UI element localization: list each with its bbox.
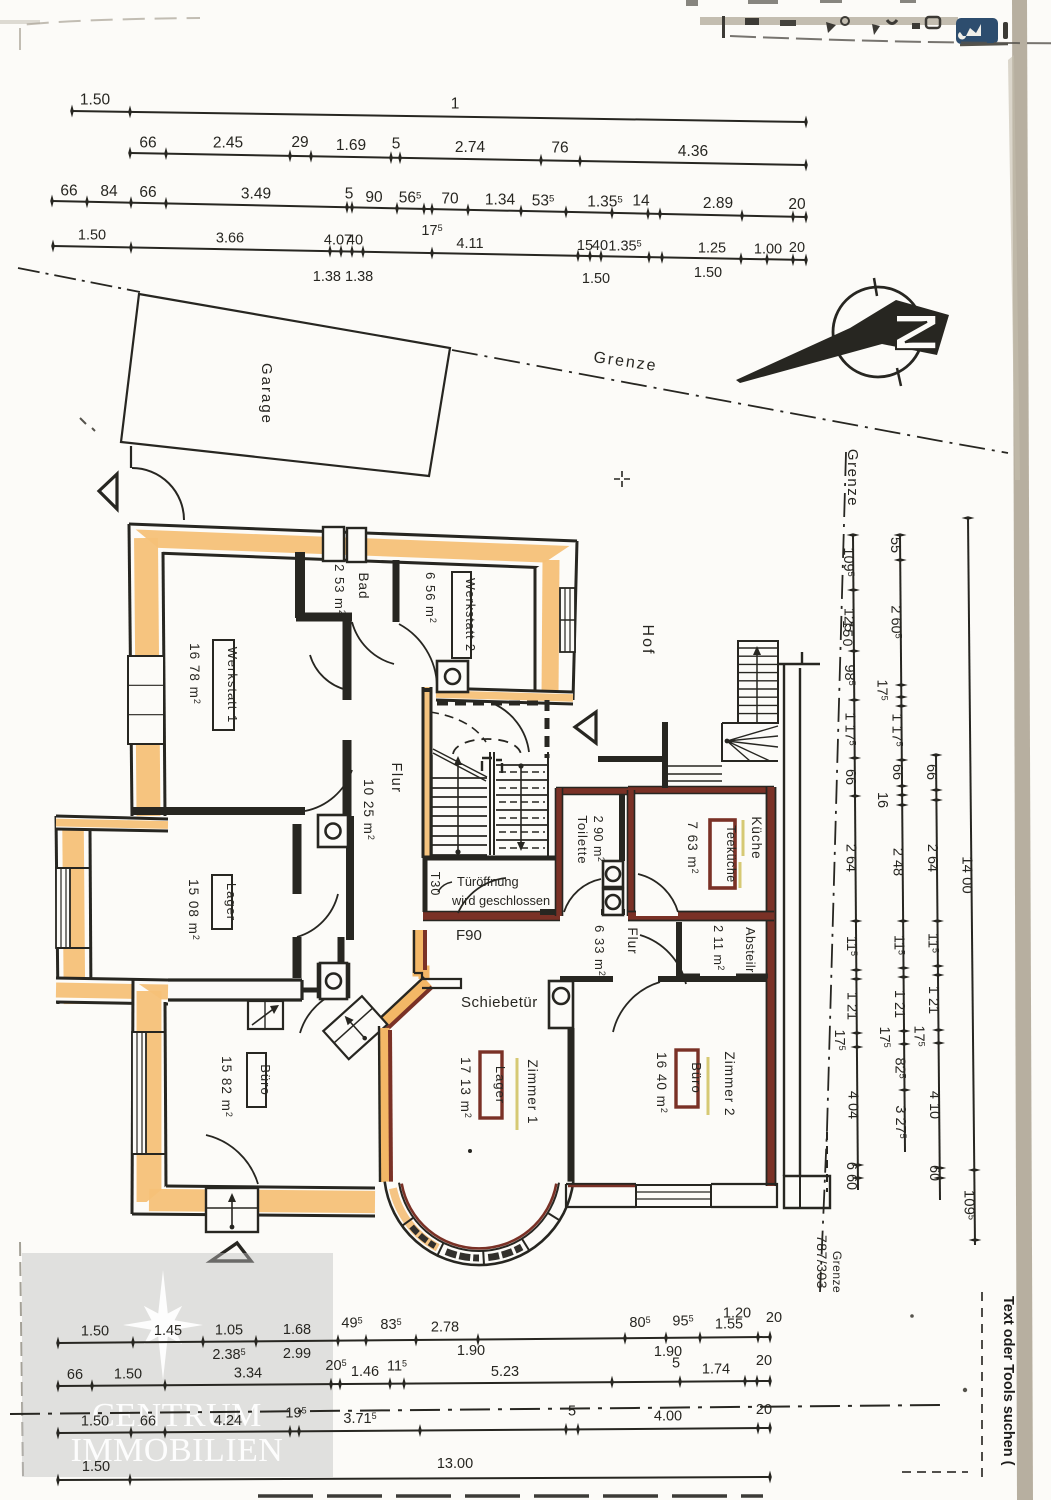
- svg-text:2 53 m2: 2 53 m2: [332, 564, 347, 616]
- svg-text:3.49: 3.49: [241, 185, 271, 202]
- svg-text:5: 5: [672, 1356, 680, 1372]
- svg-text:1.25: 1.25: [698, 240, 726, 256]
- svg-text:2.45: 2.45: [213, 135, 243, 152]
- svg-text:2 64: 2 64: [924, 844, 940, 872]
- svg-text:1.50: 1.50: [80, 91, 111, 108]
- svg-text:N: N: [883, 311, 948, 353]
- svg-text:7 63 m2: 7 63 m2: [685, 821, 700, 874]
- svg-text:Türöffnung: Türöffnung: [457, 874, 519, 889]
- svg-text:2.89: 2.89: [703, 195, 733, 212]
- svg-text:10 25 m2: 10 25 m2: [361, 779, 376, 841]
- svg-text:2.74: 2.74: [455, 139, 486, 156]
- svg-text:1.50: 1.50: [582, 271, 610, 287]
- svg-text:Werkstatt 1: Werkstatt 1: [225, 647, 240, 724]
- svg-text:40: 40: [592, 238, 608, 254]
- svg-text:Text oder Tools suchen (: Text oder Tools suchen (: [1000, 1296, 1016, 1466]
- svg-text:29: 29: [291, 134, 308, 151]
- svg-text:Absteilr: Absteilr: [743, 927, 757, 973]
- svg-text:15 82 m2: 15 82 m2: [219, 1056, 234, 1118]
- svg-text:Küche: Küche: [749, 816, 764, 859]
- svg-text:5.23: 5.23: [491, 1364, 519, 1380]
- svg-text:5: 5: [392, 136, 401, 153]
- svg-text:1.50: 1.50: [114, 1367, 142, 1383]
- svg-text:66: 66: [60, 182, 77, 199]
- svg-text:T30: T30: [428, 872, 442, 897]
- svg-text:6 60: 6 60: [843, 1162, 859, 1190]
- svg-text:1.90: 1.90: [457, 1343, 485, 1359]
- svg-text:Büro: Büro: [258, 1064, 273, 1095]
- svg-text:150: 150: [840, 620, 856, 648]
- svg-text:787/303: 787/303: [814, 1235, 830, 1289]
- svg-text:66: 66: [140, 1413, 156, 1429]
- svg-text:Flur: Flur: [388, 763, 404, 794]
- svg-text:4.00: 4.00: [654, 1409, 682, 1425]
- svg-text:76: 76: [551, 140, 568, 157]
- svg-text:Werkstatt 2: Werkstatt 2: [463, 578, 477, 652]
- svg-text:1.69: 1.69: [336, 137, 366, 154]
- svg-text:2.78: 2.78: [431, 1320, 459, 1336]
- svg-text:1 21: 1 21: [844, 992, 860, 1020]
- svg-text:14 00: 14 00: [958, 856, 975, 894]
- svg-text:Garage: Garage: [258, 363, 275, 425]
- svg-text:1.34: 1.34: [485, 192, 516, 209]
- svg-text:14: 14: [632, 192, 650, 209]
- svg-text:2.99: 2.99: [283, 1346, 311, 1362]
- svg-text:Lager: Lager: [224, 883, 239, 921]
- svg-text:Zimmer 2: Zimmer 2: [722, 1052, 737, 1117]
- svg-text:1.50: 1.50: [81, 1414, 109, 1430]
- svg-text:5: 5: [345, 185, 354, 202]
- svg-text:Flur: Flur: [625, 927, 640, 954]
- svg-text:1.20: 1.20: [723, 1305, 751, 1321]
- svg-text:2 48: 2 48: [890, 848, 906, 876]
- svg-text:1: 1: [451, 96, 460, 113]
- svg-text:55: 55: [887, 537, 903, 553]
- svg-text:66: 66: [139, 134, 156, 151]
- svg-text:66: 66: [889, 764, 905, 780]
- svg-text:20: 20: [788, 196, 806, 213]
- svg-text:2 11 m2: 2 11 m2: [711, 925, 726, 971]
- svg-text:Toilette: Toilette: [575, 815, 590, 864]
- svg-text:66: 66: [139, 184, 156, 201]
- svg-text:66: 66: [842, 769, 858, 785]
- svg-text:2 64: 2 64: [842, 844, 858, 872]
- svg-text:2 90 m2: 2 90 m2: [591, 816, 606, 863]
- svg-text:20: 20: [756, 1402, 772, 1418]
- svg-text:6 33 m2: 6 33 m2: [592, 925, 607, 977]
- svg-text:66: 66: [923, 764, 939, 780]
- svg-text:20: 20: [756, 1353, 772, 1369]
- svg-text:1.50: 1.50: [81, 1324, 109, 1340]
- svg-text:13.00: 13.00: [437, 1456, 473, 1472]
- svg-text:20: 20: [789, 240, 805, 256]
- svg-text:1.50: 1.50: [82, 1459, 110, 1475]
- svg-text:3.34: 3.34: [234, 1366, 262, 1382]
- svg-text:1.50: 1.50: [78, 228, 106, 244]
- svg-text:4.11: 4.11: [456, 236, 483, 252]
- svg-text:4 04: 4 04: [844, 1091, 860, 1119]
- svg-text:1.00: 1.00: [754, 241, 782, 257]
- svg-text:6 56 m2: 6 56 m2: [423, 572, 438, 624]
- svg-text:Büro: Büro: [689, 1062, 704, 1093]
- svg-text:Grenze: Grenze: [844, 449, 861, 507]
- svg-text:4 10: 4 10: [926, 1091, 942, 1119]
- svg-text:70: 70: [441, 190, 459, 207]
- svg-text:4.36: 4.36: [678, 143, 708, 160]
- svg-text:Grenze: Grenze: [830, 1251, 844, 1293]
- svg-text:Lager: Lager: [493, 1066, 508, 1104]
- svg-text:1 21: 1 21: [891, 990, 907, 1018]
- svg-text:1.74: 1.74: [702, 1361, 730, 1377]
- svg-text:1.05: 1.05: [215, 1323, 243, 1339]
- svg-text:wird geschlossen: wird geschlossen: [451, 893, 550, 908]
- svg-text:15 08 m2: 15 08 m2: [186, 879, 201, 941]
- svg-text:Hof: Hof: [639, 625, 656, 656]
- svg-text:5: 5: [568, 1403, 576, 1419]
- svg-text:84: 84: [100, 183, 118, 200]
- svg-text:1.68: 1.68: [283, 1322, 311, 1338]
- svg-text:4.24: 4.24: [214, 1413, 242, 1429]
- svg-text:3.66: 3.66: [216, 230, 244, 246]
- svg-text:Bad: Bad: [356, 572, 371, 599]
- svg-text:1.38 1.38: 1.38 1.38: [313, 269, 373, 285]
- svg-text:15: 15: [577, 238, 593, 254]
- svg-text:16 78 m2: 16 78 m2: [187, 643, 202, 705]
- svg-text:1.50: 1.50: [694, 265, 722, 281]
- svg-text:1.46: 1.46: [351, 1364, 379, 1380]
- svg-text:F90: F90: [456, 927, 482, 944]
- svg-text:16 40 m2: 16 40 m2: [654, 1052, 669, 1114]
- svg-text:Teeküche: Teeküche: [724, 825, 738, 883]
- svg-text:1 21: 1 21: [925, 986, 941, 1014]
- svg-text:17 13 m2: 17 13 m2: [458, 1057, 473, 1119]
- svg-text:20: 20: [766, 1310, 782, 1326]
- svg-text:90: 90: [365, 189, 383, 206]
- svg-text:60: 60: [926, 1165, 942, 1181]
- svg-text:Schiebetür: Schiebetür: [461, 994, 538, 1011]
- svg-text:66: 66: [67, 1367, 83, 1383]
- svg-text:Zimmer 1: Zimmer 1: [525, 1060, 540, 1125]
- svg-text:40: 40: [347, 233, 363, 249]
- svg-text:16: 16: [874, 792, 890, 808]
- svg-text:1.45: 1.45: [154, 1323, 182, 1339]
